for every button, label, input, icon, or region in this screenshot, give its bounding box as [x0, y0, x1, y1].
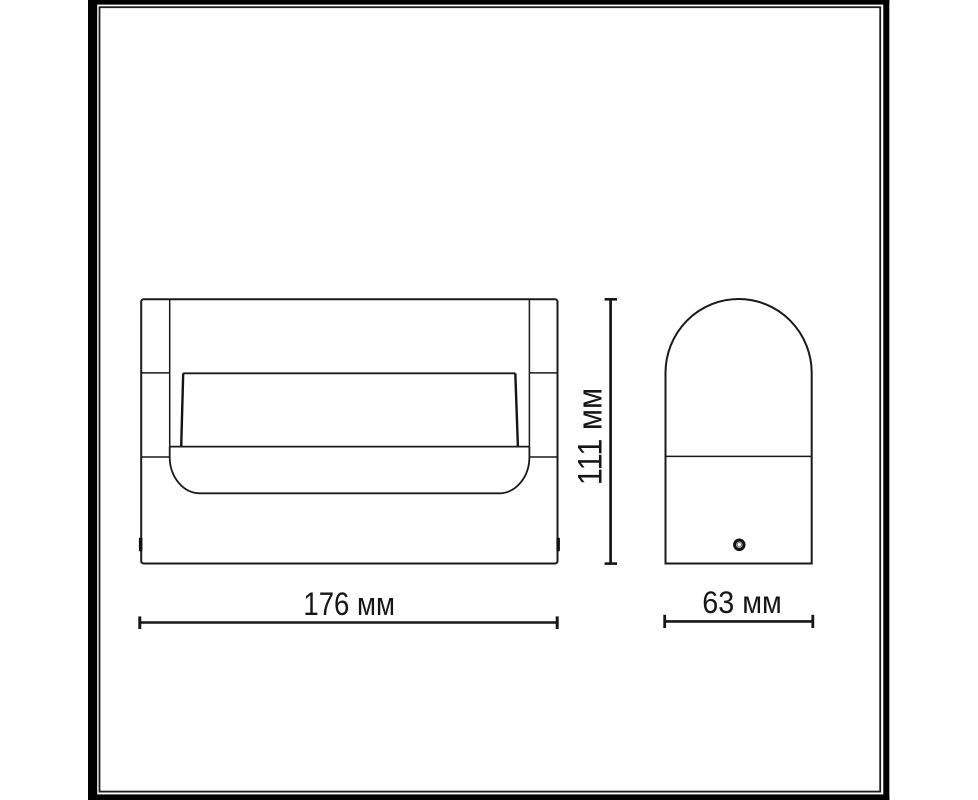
svg-text:111 мм: 111 мм [572, 388, 610, 485]
svg-text:176 мм: 176 мм [303, 586, 395, 622]
svg-text:63 мм: 63 мм [702, 584, 782, 620]
